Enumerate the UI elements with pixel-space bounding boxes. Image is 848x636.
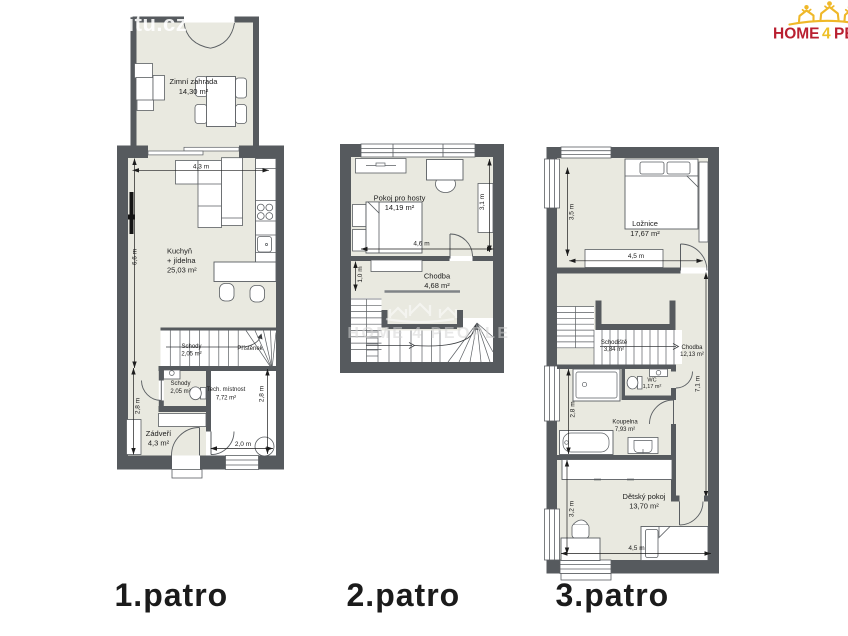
svg-text:Dětský pokoj: Dětský pokoj	[623, 492, 666, 501]
svg-text:Schodiště: Schodiště	[601, 340, 628, 346]
svg-text:Kuchyň: Kuchyň	[167, 247, 192, 256]
svg-text:17,67 m²: 17,67 m²	[630, 229, 660, 238]
svg-text:Schody: Schody	[170, 381, 190, 387]
svg-text:7,72 m²: 7,72 m²	[216, 396, 236, 402]
svg-text:4: 4	[822, 26, 831, 43]
svg-text:13,70 m²: 13,70 m²	[629, 502, 659, 511]
svg-text:4,3 m²: 4,3 m²	[148, 439, 170, 448]
svg-text:14,30 m²: 14,30 m²	[179, 87, 209, 96]
svg-text:2,0 m: 2,0 m	[235, 441, 251, 448]
svg-text:3.patro: 3.patro	[556, 577, 670, 613]
svg-text:Zádveří: Zádveří	[146, 429, 172, 438]
svg-text:WC: WC	[647, 378, 656, 384]
svg-text:1,0 m: 1,0 m	[357, 266, 364, 282]
svg-text:2,8 m: 2,8 m	[135, 398, 142, 414]
svg-text:4,6 m: 4,6 m	[413, 241, 429, 248]
svg-text:2,8 m: 2,8 m	[570, 401, 577, 417]
svg-text:2,8 m: 2,8 m	[259, 386, 266, 402]
svg-text:3,2 m: 3,2 m	[569, 501, 576, 517]
svg-text:itu.cz: itu.cz	[128, 11, 187, 36]
svg-text:14,19 m²: 14,19 m²	[385, 203, 415, 212]
svg-text:Chodba: Chodba	[424, 272, 451, 281]
svg-text:3,84 m²: 3,84 m²	[604, 347, 624, 353]
svg-text:4,3 m: 4,3 m	[193, 164, 209, 171]
svg-text:4,5 m: 4,5 m	[628, 253, 644, 260]
svg-text:3,5 m: 3,5 m	[569, 204, 576, 220]
svg-text:3,1 m: 3,1 m	[479, 194, 486, 210]
svg-text:Pokoj pro hosty: Pokoj pro hosty	[374, 194, 426, 203]
svg-text:4,5 m: 4,5 m	[628, 545, 644, 552]
svg-text:4,68 m²: 4,68 m²	[424, 281, 450, 290]
svg-text:HOME 4 PEOPLE: HOME 4 PEOPLE	[347, 325, 510, 342]
svg-text:7,1 m: 7,1 m	[695, 376, 702, 392]
svg-text:Přístěnek: Přístěnek	[237, 346, 263, 352]
svg-text:7,93 m²: 7,93 m²	[615, 427, 635, 433]
svg-text:Chodba: Chodba	[681, 345, 703, 351]
svg-text:1,17 m²: 1,17 m²	[643, 384, 662, 390]
svg-text:Ložnice: Ložnice	[632, 219, 658, 228]
svg-text:2,05 m²: 2,05 m²	[181, 352, 201, 358]
svg-text:12,13 m²: 12,13 m²	[680, 352, 704, 358]
svg-text:Zimní zahrada: Zimní zahrada	[170, 77, 219, 86]
svg-text:2.patro: 2.patro	[347, 577, 461, 613]
svg-text:Koupelna: Koupelna	[612, 420, 638, 426]
svg-text:6,6 m: 6,6 m	[132, 249, 139, 265]
svg-text:PE: PE	[834, 26, 848, 43]
svg-text:1.patro: 1.patro	[115, 577, 229, 613]
svg-text:Tech. místnost: Tech. místnost	[207, 387, 246, 393]
svg-text:Schody: Schody	[181, 344, 201, 350]
svg-text:HOME: HOME	[773, 26, 820, 43]
svg-text:+ jídelna: + jídelna	[167, 256, 196, 265]
svg-text:25,03 m²: 25,03 m²	[167, 266, 197, 275]
svg-text:2,05 m²: 2,05 m²	[170, 389, 190, 395]
